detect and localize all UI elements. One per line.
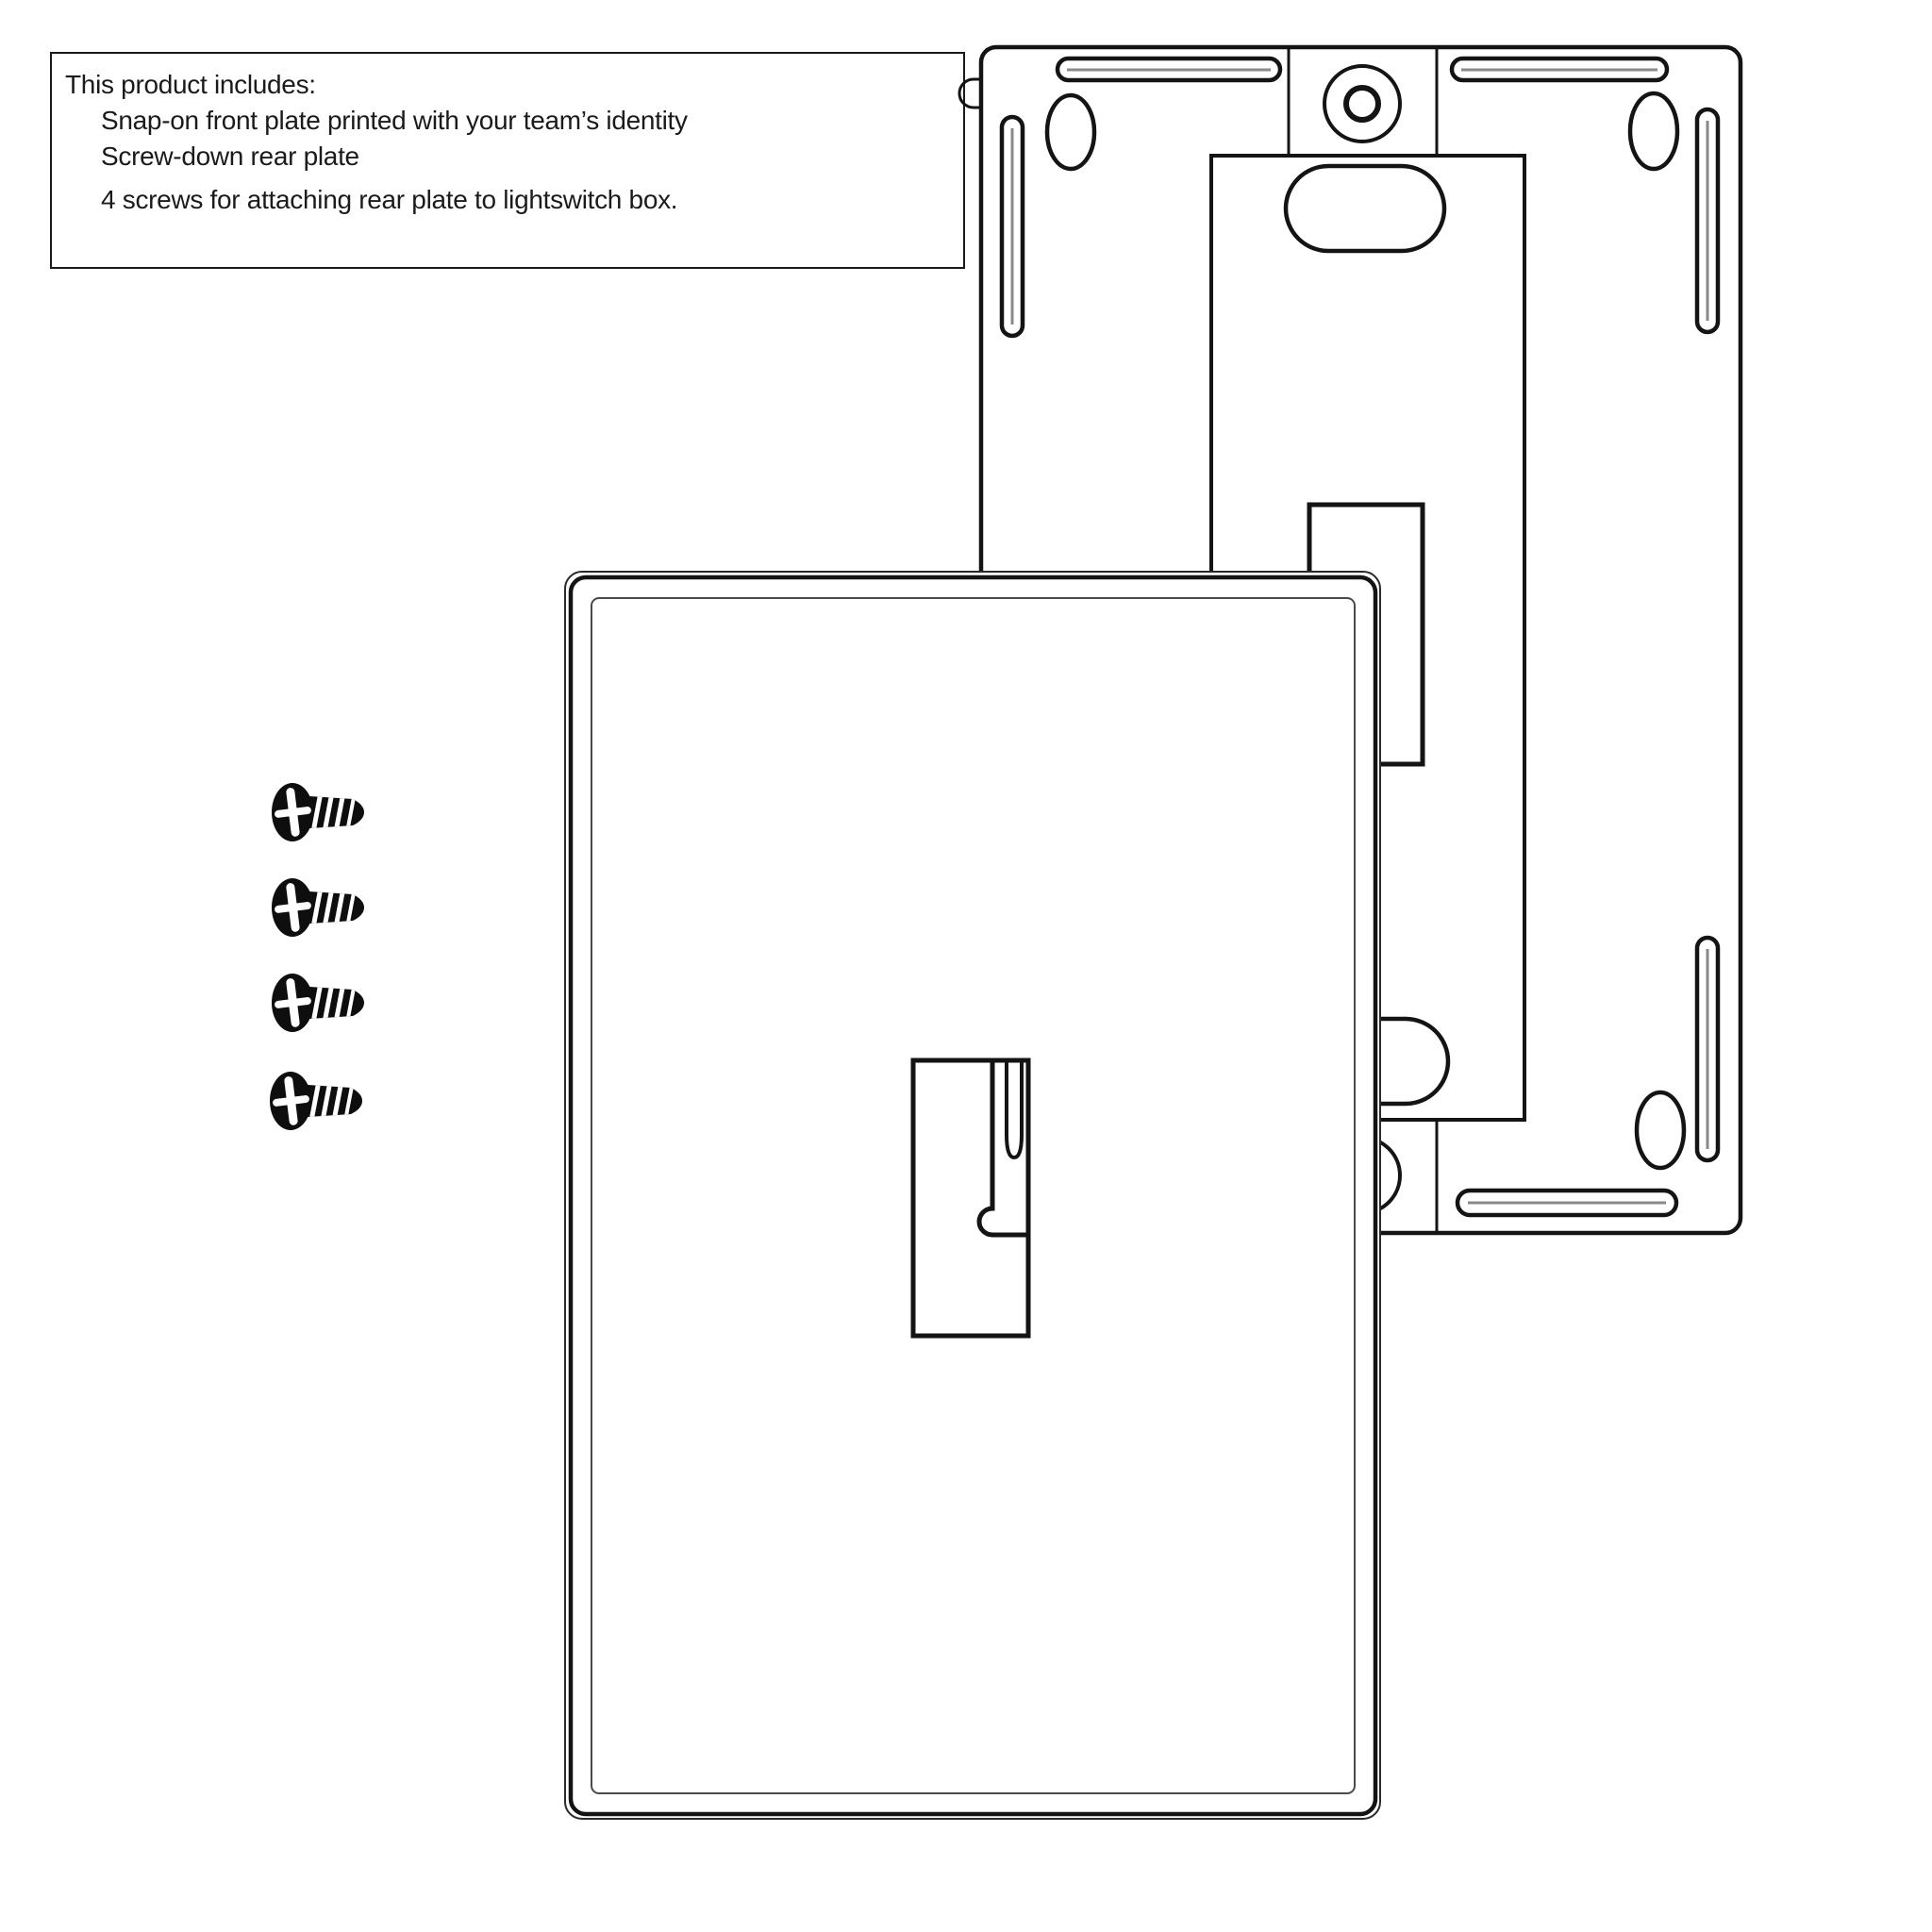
stadium-cutout-top — [1286, 166, 1444, 251]
screws-group — [270, 783, 364, 1130]
oval-hole-bottom-right — [1637, 1092, 1684, 1168]
lightswitch-plate-diagram — [0, 0, 1932, 1932]
oval-hole-top-left — [1047, 95, 1094, 169]
front-plate-drawing — [565, 572, 1380, 1819]
diagram-page: This product includes: Snap-on front pla… — [0, 0, 1932, 1932]
mounting-slot-right-bottom — [1697, 938, 1718, 1160]
mounting-slot-left-top — [1002, 117, 1023, 336]
screw-icon — [270, 1072, 362, 1130]
rear-plate-notch — [959, 79, 982, 108]
screw-icon — [272, 974, 364, 1032]
mounting-slot-bottom-right — [1457, 1191, 1676, 1215]
mounting-slot-right-top — [1697, 109, 1718, 332]
mounting-slot-top-left — [1058, 58, 1280, 80]
screw-icon — [272, 783, 364, 841]
front-plate-shadow-edge — [565, 572, 1380, 1819]
oval-hole-top-right — [1630, 93, 1677, 169]
screw-tab-top — [1289, 48, 1437, 156]
screw-icon — [272, 878, 364, 937]
mounting-slot-top-right — [1452, 58, 1667, 80]
